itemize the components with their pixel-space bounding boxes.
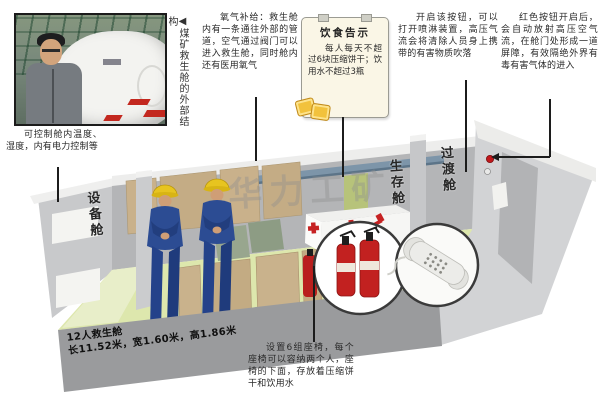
exterior-photo xyxy=(14,13,167,126)
red-button-annotation: 红色按钮开启后，会自动放射高压空气流，在舱门处形成一道屏障，有效隔绝外界有毒有害… xyxy=(501,13,598,73)
watermark-text: 华力工矿 xyxy=(227,159,393,217)
oxygen-annotation: 氧气补给：救生舱内有一条通往外部的管道，空气通过阀门可以进入救生舱，同时舱内还有… xyxy=(202,13,298,73)
label-survival-cabin: 生存舱 xyxy=(384,158,406,207)
oxygen-connector-line xyxy=(255,97,257,161)
climate-connector-line xyxy=(57,167,59,202)
capsule-red-stripe xyxy=(127,99,150,105)
photo-caption: ◀煤矿救生舱的外部结构 xyxy=(166,16,188,128)
biscuit-icon xyxy=(310,103,331,121)
glasses-icon xyxy=(42,49,60,52)
climate-control-annotation: 可控制舱内温度、湿度，内有电力控制等 xyxy=(6,130,102,154)
capsule-red-stripe xyxy=(103,115,122,121)
spray-connector-line xyxy=(465,80,467,172)
capsule-logo-mark xyxy=(103,59,121,65)
seats-connector-line xyxy=(313,266,315,342)
presenter-jacket xyxy=(26,63,82,125)
spray-button xyxy=(485,169,491,175)
redbtn-connector-line-v xyxy=(549,99,551,157)
food-notice-body: 每人每天不超过6块压缩饼干；饮用水不超过3瓶 xyxy=(308,44,382,78)
magnifier-circle-extinguishers xyxy=(314,222,406,314)
capsule-red-stripe xyxy=(143,110,167,117)
redbtn-arrow-icon xyxy=(491,153,499,161)
card-tab xyxy=(361,14,372,22)
door-handle-post xyxy=(492,182,508,210)
food-notice-card: 饮食告示 每人每天不超过6块压缩饼干；饮用水不超过3瓶 xyxy=(301,17,389,118)
label-equipment-cabin: 设备舱 xyxy=(82,190,105,239)
presenter-face xyxy=(40,39,62,65)
food-notice-title: 饮食告示 xyxy=(302,25,388,40)
food-connector-line xyxy=(342,117,344,177)
redbtn-connector-line-h xyxy=(498,156,550,158)
card-tab xyxy=(318,14,329,22)
presenter-person xyxy=(24,33,86,125)
label-transition-cabin: 过渡舱 xyxy=(435,145,457,194)
spray-button-annotation: 开启该按钮，可以打开喷淋装置，高压气流会将清除人员身上携带的有害物质吹落 xyxy=(398,13,498,61)
seats-annotation: 设置6组座椅，每个座椅可以容纳两个人，座椅的下面，存放着压缩饼干和饮用水 xyxy=(248,343,354,391)
